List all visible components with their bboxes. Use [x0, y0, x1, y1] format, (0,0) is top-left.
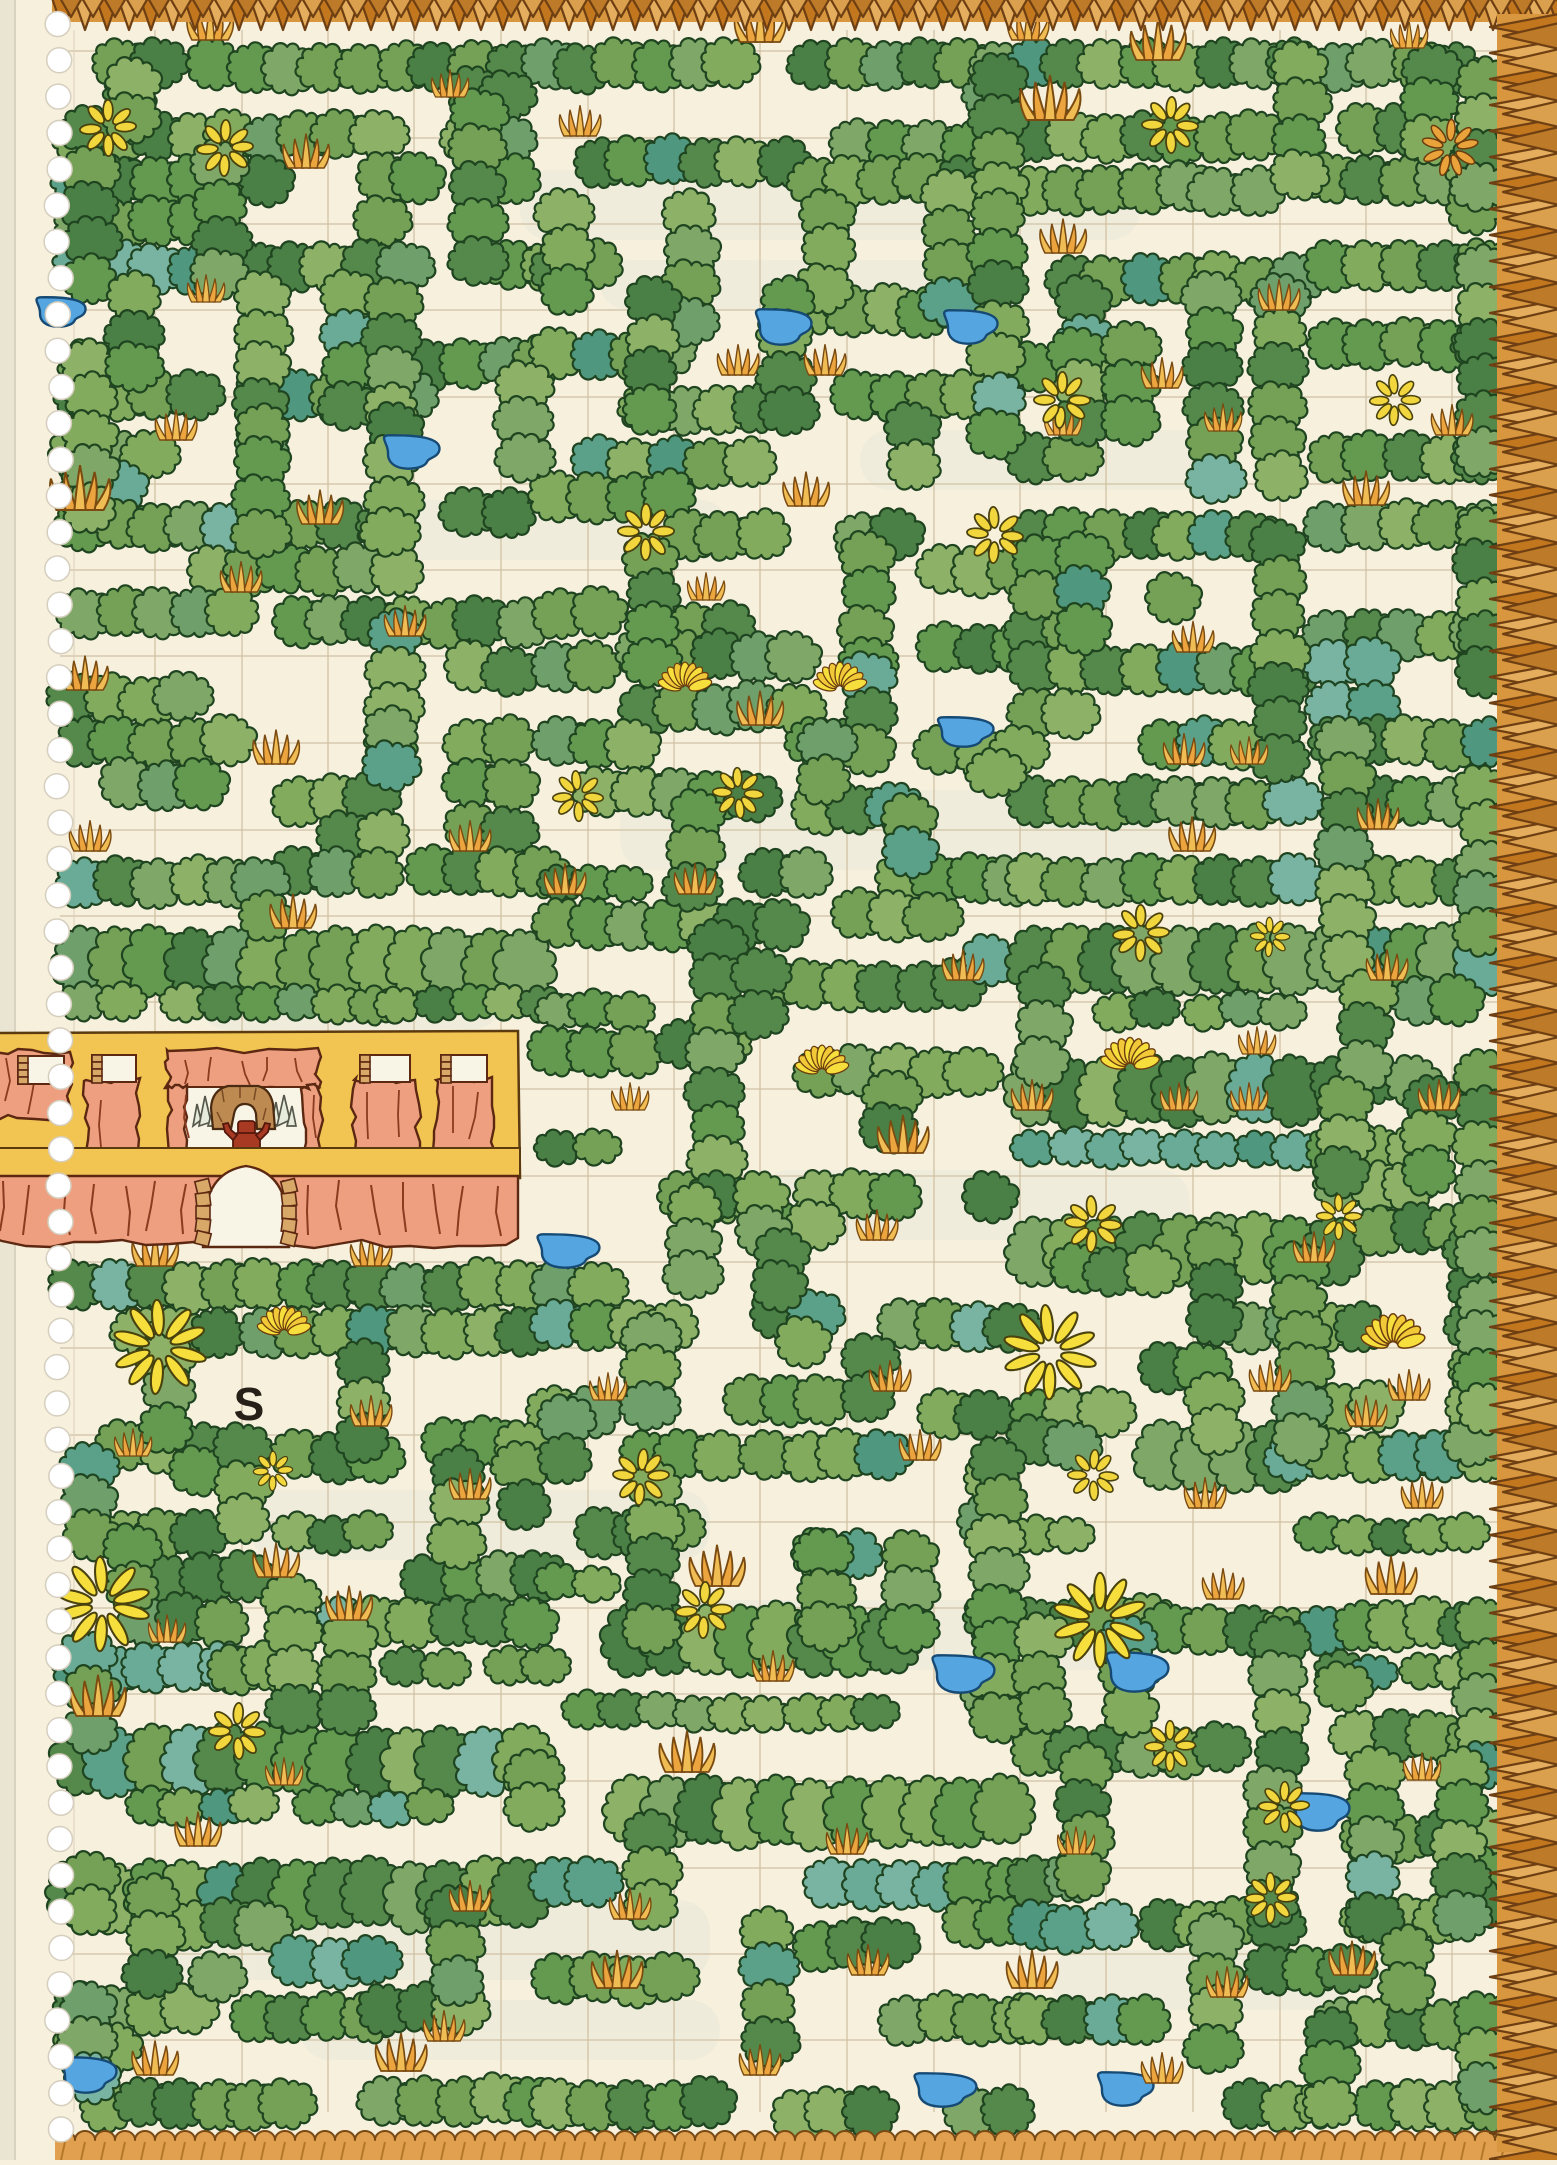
svg-text:S: S — [234, 1378, 265, 1430]
